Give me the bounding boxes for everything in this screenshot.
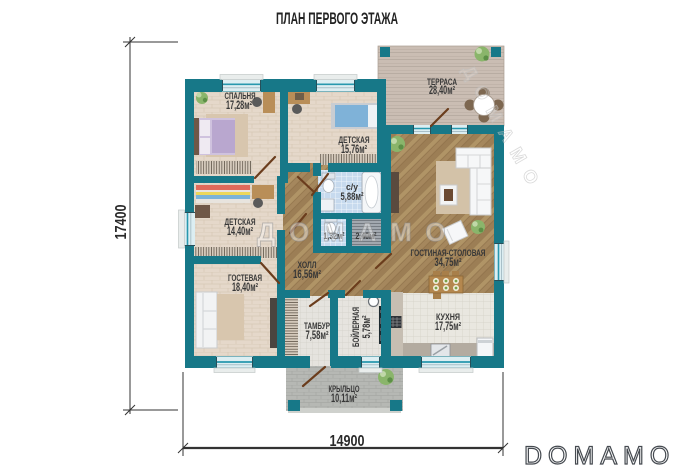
svg-text:28,40м²: 28,40м² (429, 85, 455, 97)
svg-text:5,78м²: 5,78м² (361, 315, 373, 338)
svg-text:7,58м²: 7,58м² (306, 330, 329, 342)
svg-text:17400: 17400 (113, 205, 130, 240)
svg-text:34,75м²: 34,75м² (435, 257, 462, 269)
svg-text:10,11м²: 10,11м² (331, 393, 357, 405)
svg-text:15,76м²: 15,76м² (341, 144, 367, 156)
svg-text:17,75м²: 17,75м² (435, 321, 461, 333)
svg-text:14,40м²: 14,40м² (227, 226, 253, 238)
svg-text:16,56м²: 16,56м² (293, 269, 321, 281)
svg-text:18,40м²: 18,40м² (232, 282, 258, 294)
svg-text:БОЙЛЕРНАЯ: БОЙЛЕРНАЯ (350, 307, 361, 347)
svg-text:14900: 14900 (330, 433, 365, 450)
svg-text:17,28м²: 17,28м² (226, 100, 252, 112)
svg-text:DOMAMO: DOMAMO (524, 442, 675, 470)
svg-text:ПЛАН ПЕРВОГО ЭТАЖА: ПЛАН ПЕРВОГО ЭТАЖА (276, 9, 398, 28)
svg-text:ДОМАМО: ДОМАМО (257, 217, 459, 247)
svg-text:5,88м²: 5,88м² (341, 191, 364, 203)
